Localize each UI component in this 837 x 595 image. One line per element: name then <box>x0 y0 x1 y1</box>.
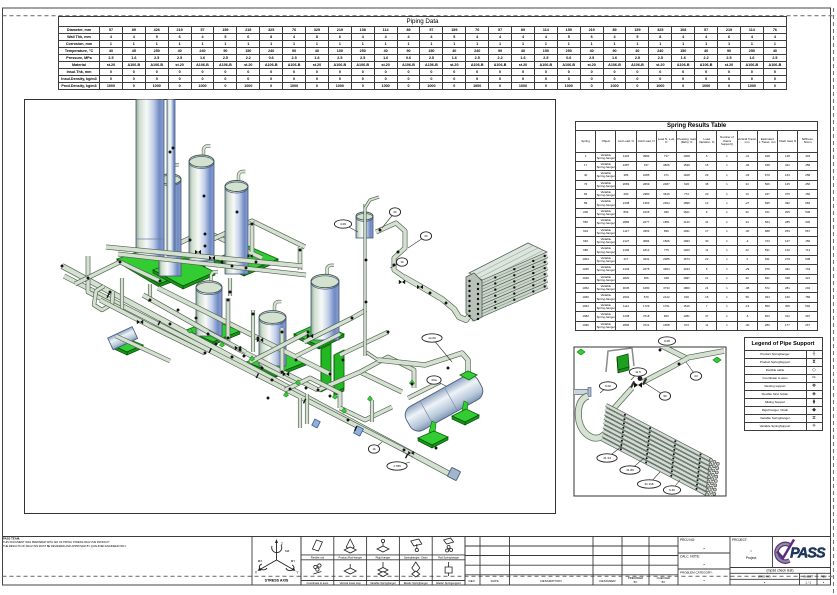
svg-text:Variable Springhanger: Variable Springhanger <box>370 581 396 585</box>
svg-text:DESCRIPTION: DESCRIPTION <box>540 579 561 583</box>
svg-text:MX: MX <box>258 559 263 563</box>
svg-text:Project: Project <box>746 556 757 560</box>
svg-text:1b: 1b <box>400 260 404 264</box>
svg-text:4.09: 4.09 <box>340 222 346 226</box>
svg-text:PASS: PASS <box>790 546 826 562</box>
svg-text:14.09: 14.09 <box>428 336 436 340</box>
svg-text:PROJ NO:: PROJ NO: <box>680 538 695 542</box>
svg-text:THE RESULTS OF ANALYSIS MUST B: THE RESULTS OF ANALYSIS MUST BE REVIEWED… <box>3 544 127 548</box>
svg-text:Rigid hanger: Rigid hanger <box>376 556 391 560</box>
svg-text:Springhanger, Chain: Springhanger, Chain <box>404 556 428 560</box>
svg-text:11.5: 11.5 <box>635 370 641 374</box>
svg-text:Product Rod-hanger: Product Rod-hanger <box>339 556 362 560</box>
svg-text:•: • <box>703 579 704 583</box>
svg-text:1 / 1: 1 / 1 <box>805 581 811 585</box>
svg-text:REV: REV <box>821 575 827 579</box>
svg-text:(mp3d check test): (mp3d check test) <box>767 569 794 573</box>
svg-text:MY: MY <box>291 559 296 563</box>
svg-text:9.05: 9.05 <box>664 339 670 343</box>
svg-text:SHEET: SHEET <box>803 575 813 579</box>
svg-text:9.46: 9.46 <box>669 488 675 492</box>
svg-text:1b: 1b <box>372 447 376 451</box>
svg-text:•: • <box>764 581 765 585</box>
svg-text:PASS TEAM:: PASS TEAM: <box>3 537 20 541</box>
svg-text:CALC. NOTE:: CALC. NOTE: <box>680 555 700 559</box>
svg-text:23: 23 <box>694 374 698 378</box>
svg-text:Elastic Springhanger: Elastic Springhanger <box>404 581 428 585</box>
svg-text:41.34: 41.34 <box>603 456 611 460</box>
svg-text:THIS DOCUMENT WAS PREPARED WIT: THIS DOCUMENT WAS PREPARED WITH AID OF P… <box>3 540 110 544</box>
svg-text:2b: 2b <box>393 210 397 214</box>
svg-text:2b: 2b <box>424 234 428 238</box>
svg-text:•: • <box>703 547 704 551</box>
svg-text:REV.: REV. <box>469 579 476 583</box>
svg-text:PROJECT:: PROJECT: <box>732 538 748 542</box>
svg-text:Elastic Springsupport: Elastic Springsupport <box>436 581 461 585</box>
svg-text:PROBLEM CATEGORY:: PROBLEM CATEGORY: <box>680 571 713 575</box>
svg-text:DWG NO.: DWG NO. <box>758 575 772 579</box>
svg-text:41.89: 41.89 <box>626 468 634 472</box>
svg-text:Rod Springhanger: Rod Springhanger <box>438 556 459 560</box>
svg-text:1.786: 1.786 <box>393 464 401 468</box>
svg-text:Coordinate to axes: Coordinate to axes <box>307 581 329 585</box>
svg-text:DESIGNER: DESIGNER <box>599 579 616 583</box>
svg-text:STRESS AXIS: STRESS AXIS <box>265 579 289 583</box>
svg-text:9.00: 9.00 <box>605 384 611 388</box>
svg-text:Vertical travel stop: Vertical travel stop <box>340 581 362 585</box>
svg-text:Z: Z <box>281 542 283 546</box>
svg-text:BY: BY <box>634 580 638 584</box>
svg-text:•: • <box>703 563 704 567</box>
svg-text:BY: BY <box>662 580 666 584</box>
svg-text:DATE: DATE <box>491 579 499 583</box>
svg-text:Flexible rod: Flexible rod <box>311 556 325 560</box>
svg-text:MZ: MZ <box>285 549 289 553</box>
svg-text:41.118: 41.118 <box>645 482 654 486</box>
svg-text:•: • <box>750 549 751 553</box>
svg-text:09a: 09a <box>431 378 436 382</box>
svg-text:96: 96 <box>663 394 667 398</box>
svg-text:•: • <box>823 581 824 585</box>
